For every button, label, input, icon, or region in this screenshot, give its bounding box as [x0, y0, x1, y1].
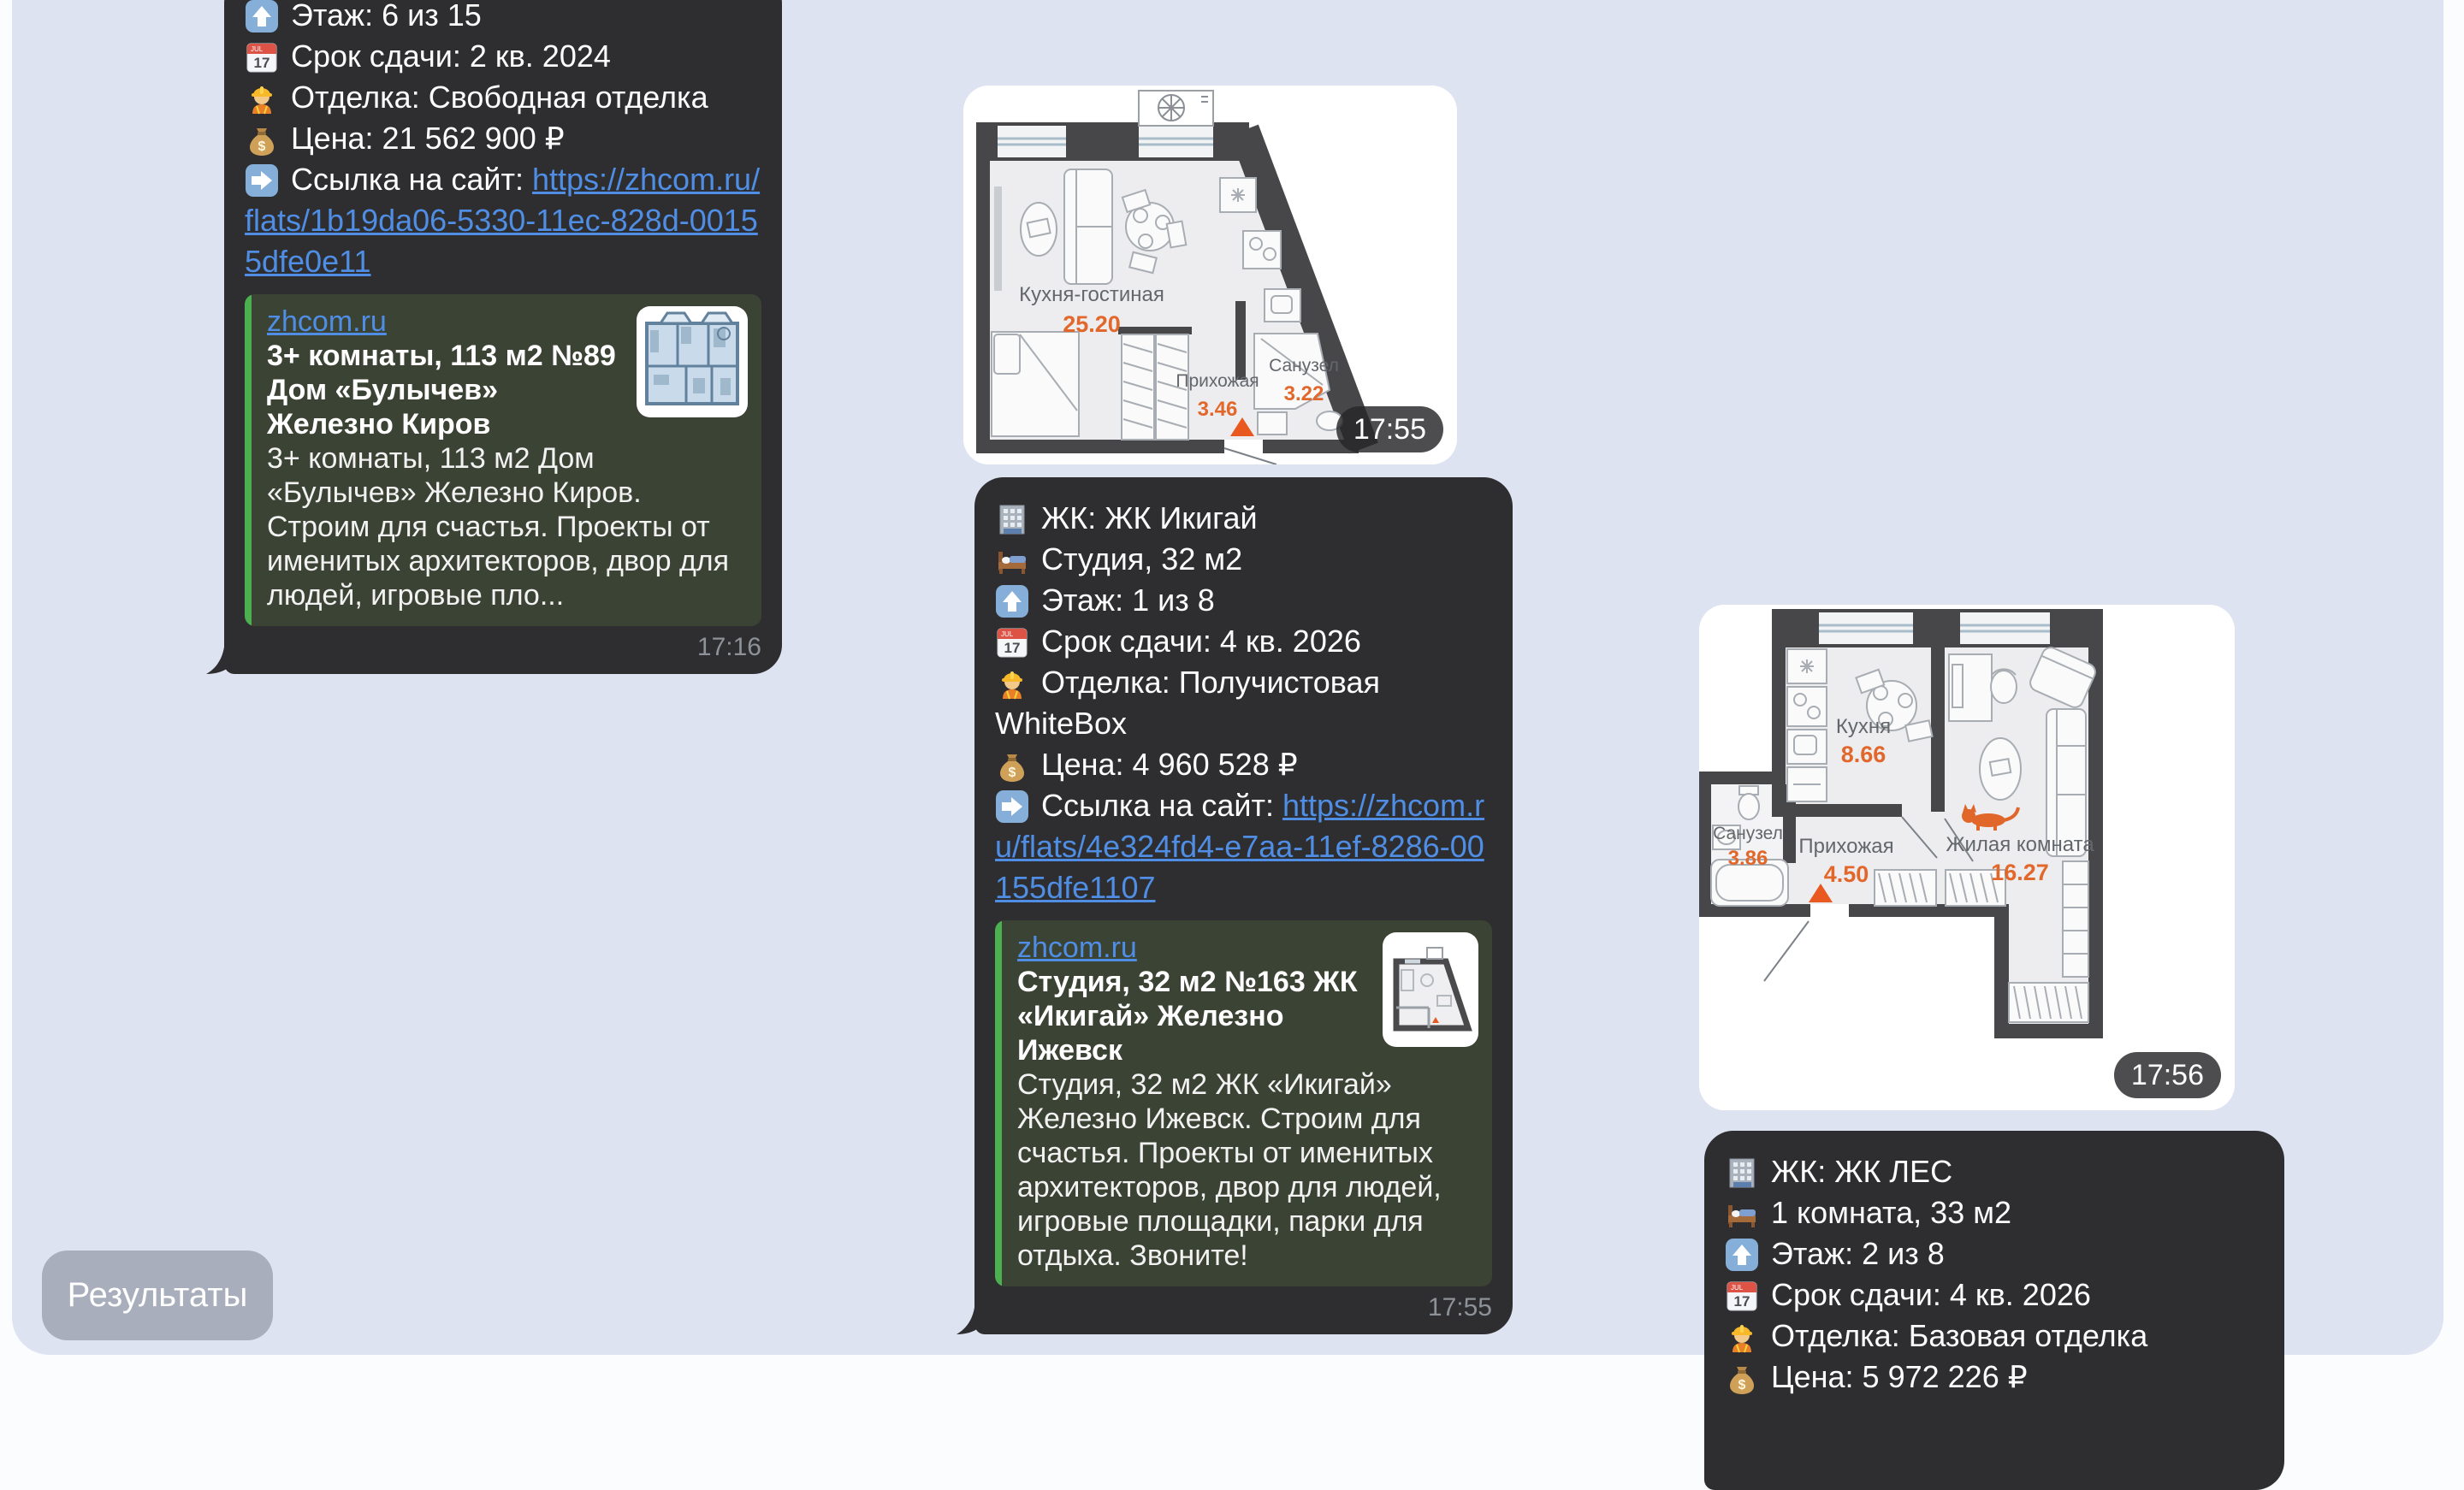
telegram-chat-screen: { "colors": { "page_bg": "#dee3f1", "bub… — [0, 0, 2464, 1369]
preview-accent-bar — [245, 294, 252, 626]
room-area: 16.27 — [1991, 860, 2049, 885]
room-label: Кухня — [1836, 715, 1891, 738]
preview-description: 3+ комнаты, 113 м2 Дом «Булычев» Железно… — [267, 441, 748, 612]
room-area: 4.50 — [1824, 861, 1869, 887]
line-text: Цена: 5 972 226 ₽ — [1771, 1359, 2028, 1394]
flat-floor-line: Этаж: 2 из 8 — [1725, 1233, 2264, 1274]
calendar-icon: JUL17 — [1725, 1279, 1759, 1313]
flat-link-line: Ссылка на сайт: https://zhcom.ru/flats/1… — [245, 159, 761, 282]
link-prefix: Ссылка на сайт: — [1041, 788, 1282, 823]
line-text: Этаж: 1 из 8 — [1041, 582, 1215, 618]
arrow-right-icon — [995, 789, 1029, 824]
svg-text:17: 17 — [254, 55, 270, 71]
moneybag-icon: $ — [995, 748, 1029, 783]
flat-rooms-line: Студия, 32 м2 — [995, 539, 1492, 580]
line-text: ЖК: ЖК ЛЕС — [1771, 1154, 1952, 1189]
room-label: Жилая комната — [1946, 833, 2094, 856]
worker-icon — [1725, 1320, 1759, 1354]
arrow-up-icon — [995, 584, 1029, 618]
link-prefix: Ссылка на сайт: — [291, 162, 532, 197]
svg-text:$: $ — [1738, 1378, 1746, 1392]
photo-message-floorplan-1[interactable]: Кухня-гостиная 25.20 Прихожая 3.46 Сануз… — [963, 86, 1457, 464]
line-text: Студия, 32 м2 — [1041, 541, 1242, 576]
worker-icon — [245, 81, 279, 115]
line-text: Срок сдачи: 4 кв. 2026 — [1771, 1277, 2091, 1312]
photo-timestamp: 17:56 — [2114, 1052, 2221, 1098]
room-label: Прихожая — [1176, 371, 1259, 391]
room-label: Санузел — [1713, 824, 1783, 843]
photo-message-floorplan-2[interactable]: Кухня 8.66 Санузел 3.86 Прихожая 4.50 Жи… — [1699, 605, 2235, 1110]
calendar-icon: JUL17 — [995, 625, 1029, 659]
line-text: Отделка: Базовая отделка — [1771, 1318, 2147, 1353]
room-label: Прихожая — [1798, 835, 1893, 858]
worker-icon — [995, 666, 1029, 701]
line-text: Отделка: Свободная отделка — [291, 80, 708, 115]
message-bubble-flat-3: ЖК: ЖК ЛЕС 1 комната, 33 м2 Этаж: 2 из 8… — [1704, 1131, 2284, 1490]
flat-deadline-line: JUL17Срок сдачи: 2 кв. 2024 — [245, 36, 761, 77]
line-text: Этаж: 6 из 15 — [291, 0, 482, 33]
flat-floor-line: Этаж: 1 из 8 — [995, 580, 1492, 621]
line-text: ЖК: ЖК Икигай — [1041, 500, 1258, 535]
flat-finish-line: Отделка: Базовая отделка — [1725, 1316, 2264, 1357]
floorplan-drawing: Кухня 8.66 Санузел 3.86 Прихожая 4.50 Жи… — [1699, 605, 2235, 1110]
flat-link-line: Ссылка на сайт: https://zhcom.ru/flats/4… — [995, 785, 1492, 908]
moneybag-icon: $ — [245, 122, 279, 157]
flat-complex-line: ЖК: ЖК Икигай — [995, 498, 1492, 539]
preview-description: Студия, 32 м2 ЖК «Икигай» Железно Ижевск… — [1017, 1067, 1478, 1273]
flat-price-line: $Цена: 21 562 900 ₽ — [245, 118, 761, 159]
line-text: Цена: 21 562 900 ₽ — [291, 121, 565, 156]
bed-icon — [1725, 1197, 1759, 1231]
room-area: 3.46 — [1198, 398, 1238, 421]
line-text: Цена: 4 960 528 ₽ — [1041, 747, 1298, 782]
flat-complex-line: ЖК: ЖК ЛЕС — [1725, 1151, 2264, 1192]
preview-site-link[interactable]: zhcom.ru — [267, 305, 387, 339]
line-text: 1 комната, 33 м2 — [1771, 1195, 2011, 1230]
floorplan-thumbnail-blue — [637, 306, 748, 417]
message-bubble-flat-2: ЖК: ЖК Икигай Студия, 32 м2 Этаж: 1 из 8… — [974, 477, 1513, 1334]
arrow-up-icon — [245, 0, 279, 33]
svg-text:JUL: JUL — [1731, 1284, 1744, 1292]
message-bubble-flat-1: Этаж: 6 из 15 JUL17Срок сдачи: 2 кв. 202… — [224, 0, 782, 674]
flat-deadline-line: JUL17Срок сдачи: 4 кв. 2026 — [1725, 1274, 2264, 1316]
bubble-tail — [206, 636, 235, 674]
room-label: Санузел — [1269, 356, 1339, 375]
bubble-tail — [957, 1297, 986, 1334]
flat-deadline-line: JUL17Срок сдачи: 4 кв. 2026 — [995, 621, 1492, 662]
photo-timestamp: 17:55 — [1336, 406, 1443, 452]
svg-text:JUL: JUL — [1001, 630, 1014, 638]
floorplan-thumbnail-gray — [1383, 932, 1478, 1047]
arrow-right-icon — [245, 163, 279, 198]
preview-site-link[interactable]: zhcom.ru — [1017, 931, 1137, 965]
building-icon — [1725, 1156, 1759, 1190]
link-preview[interactable]: zhcom.ru 3+ комнаты, 113 м2 №89 Дом «Бул… — [245, 294, 761, 626]
room-area: 3.22 — [1284, 382, 1324, 405]
line-text: Этаж: 2 из 8 — [1771, 1236, 1945, 1271]
flat-finish-line: Отделка: Свободная отделка — [245, 77, 761, 118]
line-text: Срок сдачи: 4 кв. 2026 — [1041, 624, 1361, 659]
flat-price-line: $Цена: 5 972 226 ₽ — [1725, 1357, 2264, 1398]
results-reply-button[interactable]: Результаты — [42, 1251, 273, 1340]
room-area: 25.20 — [1063, 311, 1121, 337]
message-timestamp: 17:16 — [245, 633, 761, 662]
link-preview[interactable]: zhcom.ru Студия, 32 м2 №163 ЖК «Икигай» … — [995, 920, 1492, 1286]
line-text: Отделка: Получистовая WhiteBox — [995, 665, 1380, 741]
building-icon — [995, 502, 1029, 536]
preview-thumbnail[interactable] — [1383, 932, 1478, 1047]
bed-icon — [995, 543, 1029, 577]
flat-price-line: $Цена: 4 960 528 ₽ — [995, 744, 1492, 785]
flat-floor-line: Этаж: 6 из 15 — [245, 0, 761, 36]
moneybag-icon: $ — [1725, 1361, 1759, 1395]
svg-text:$: $ — [258, 139, 266, 154]
svg-text:JUL: JUL — [251, 45, 264, 53]
preview-accent-bar — [995, 920, 1002, 1286]
message-timestamp: 17:55 — [995, 1293, 1492, 1322]
svg-text:17: 17 — [1734, 1293, 1750, 1310]
line-text: Срок сдачи: 2 кв. 2024 — [291, 38, 611, 74]
preview-thumbnail[interactable] — [637, 306, 748, 417]
arrow-up-icon — [1725, 1238, 1759, 1272]
flat-finish-line: Отделка: Получистовая WhiteBox — [995, 662, 1492, 744]
room-area: 3.86 — [1728, 847, 1768, 870]
room-label: Кухня-гостиная — [1019, 283, 1164, 306]
flat-rooms-line: 1 комната, 33 м2 — [1725, 1192, 2264, 1233]
room-area: 8.66 — [1841, 742, 1886, 767]
svg-text:17: 17 — [1004, 640, 1021, 656]
calendar-icon: JUL17 — [245, 40, 279, 74]
svg-text:$: $ — [1009, 766, 1016, 780]
